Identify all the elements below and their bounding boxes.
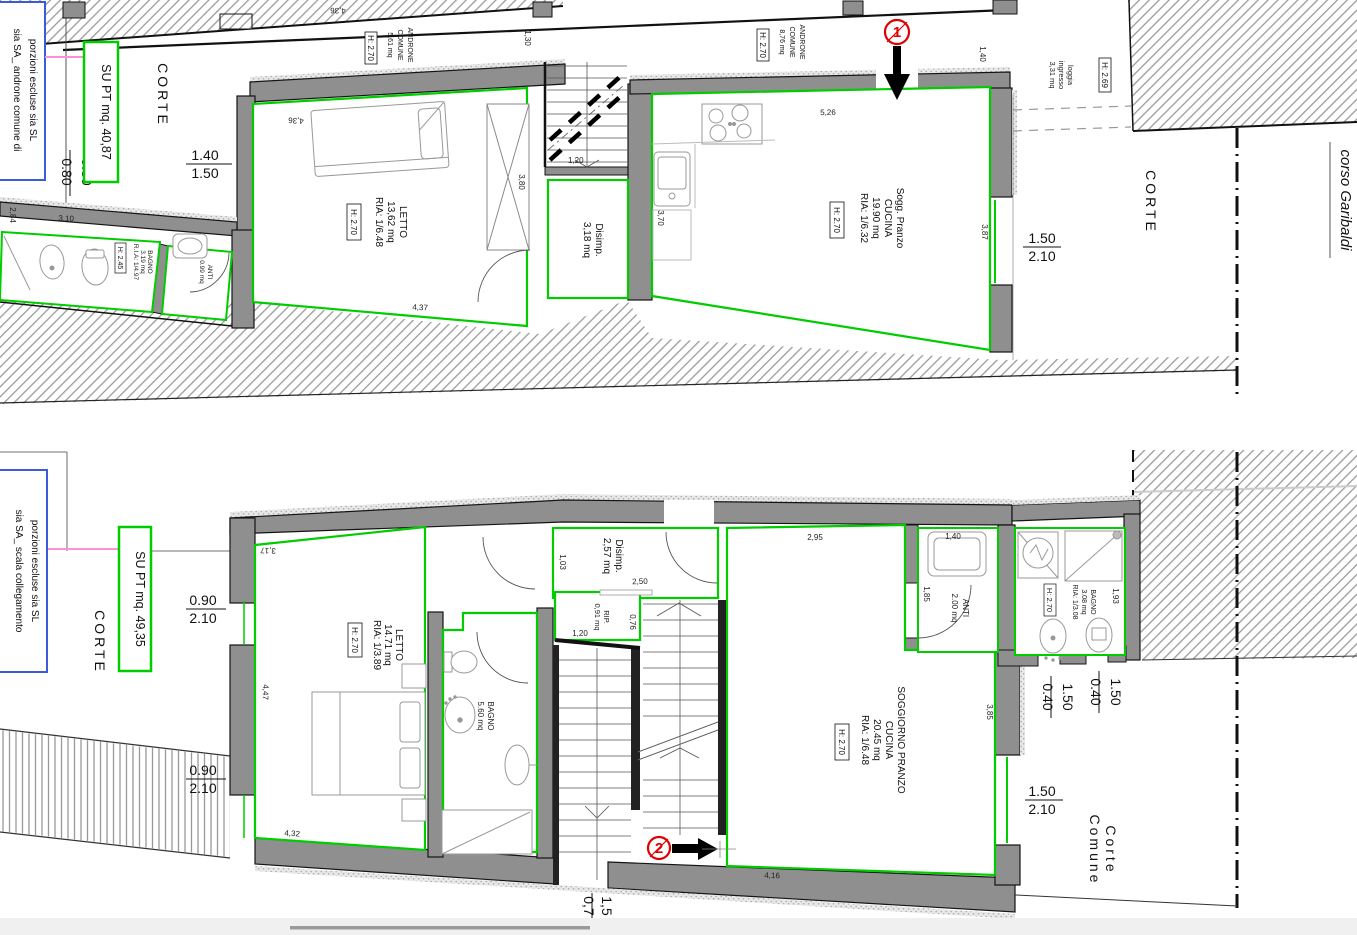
sink-icon-upper [654, 152, 690, 206]
svg-text:0.40: 0.40 [1088, 678, 1104, 705]
svg-text:Comune: Comune [1087, 815, 1103, 886]
svg-text:COMUNE: COMUNE [396, 29, 403, 60]
svg-text:H: 2.69: H: 2.69 [1100, 62, 1109, 88]
svg-text:Disimp.: Disimp. [613, 539, 624, 572]
svg-text:H: 2.70: H: 2.70 [758, 32, 767, 58]
svg-text:1.50: 1.50 [1028, 783, 1055, 799]
svg-text:1.50: 1.50 [1108, 678, 1124, 705]
svg-text:CUCINA: CUCINA [883, 721, 894, 760]
corte-upper-right: CORTE [1143, 170, 1159, 234]
floor-plan-canvas: 1 ANDRONE COMUNE 5,61 mq H: 2.70 ANDRONE… [0, 0, 1357, 935]
svg-text:RIA: 1/3.08: RIA: 1/3.08 [1071, 584, 1078, 619]
svg-text:3.19 mq: 3.19 mq [139, 250, 146, 274]
dim-window3-lower: 1.50 2.10 [1025, 783, 1063, 817]
corte-comune-boundary [1015, 895, 1237, 906]
svg-text:3.08 mq: 3.08 mq [1080, 589, 1087, 614]
svg-text:0.40: 0.40 [1040, 683, 1056, 710]
svg-text:1.50: 1.50 [191, 165, 218, 181]
label-bagno-grande: BAGNO 5.60 mq [476, 702, 495, 731]
svg-text:1,20: 1,20 [568, 156, 584, 165]
svg-text:2.10: 2.10 [1028, 801, 1055, 817]
svg-text:BAGNO: BAGNO [146, 250, 153, 273]
svg-text:2,50: 2,50 [632, 577, 648, 587]
svg-text:RIA: 1/6.32: RIA: 1/6.32 [858, 193, 869, 243]
su-pt-box-upper: SU PT mq. 40,87 [84, 42, 118, 182]
entrance-marker-2: 2 [648, 837, 736, 860]
svg-text:3,17: 3,17 [259, 546, 276, 556]
svg-text:4,36: 4,36 [287, 115, 304, 125]
dim-door2-lower: 0.40 1.50 [1088, 671, 1124, 713]
bottom-strip [0, 918, 1357, 935]
svg-text:ANDRONE: ANDRONE [798, 24, 805, 59]
svg-text:2.00 mq: 2.00 mq [950, 594, 959, 623]
svg-text:3,31 mq: 3,31 mq [1048, 61, 1057, 88]
door-arc-letto-lower [483, 537, 535, 589]
marker-2-label: 2 [655, 840, 663, 857]
svg-text:0.80: 0.80 [59, 158, 75, 185]
svg-text:ingresso: ingresso [1057, 61, 1066, 89]
svg-text:4,47: 4,47 [261, 684, 271, 700]
svg-text:ANDRONE: ANDRONE [406, 27, 413, 62]
svg-text:2,95: 2,95 [807, 533, 823, 542]
label-androne-right: ANDRONE COMUNE 8,76 mq H: 2.70 [757, 24, 805, 61]
svg-text:COMUNE: COMUNE [788, 26, 795, 57]
svg-text:5,61 mq: 5,61 mq [386, 32, 393, 57]
svg-text:2.10: 2.10 [1028, 248, 1055, 264]
svg-text:8,76 mq: 8,76 mq [778, 29, 785, 54]
svg-text:H: 2.70: H: 2.70 [832, 207, 841, 233]
svg-text:4,16: 4,16 [764, 871, 780, 881]
svg-text:0.90: 0.90 [189, 762, 216, 778]
corte-lower-left: CORTE [92, 610, 108, 674]
svg-text:RIA: 1/6.48: RIA: 1/6.48 [373, 197, 384, 247]
svg-text:0.90: 0.90 [189, 592, 216, 608]
svg-text:3,87: 3,87 [980, 224, 989, 240]
svg-text:BAGNO: BAGNO [486, 702, 495, 731]
svg-text:BAGNO: BAGNO [1089, 589, 1096, 615]
svg-text:4,37: 4,37 [412, 303, 429, 313]
svg-text:1.50: 1.50 [1060, 683, 1076, 710]
svg-text:H: 2.70: H: 2.70 [349, 209, 358, 235]
svg-text:0,76: 0,76 [628, 614, 637, 630]
shower-icon-bagno-grande [442, 810, 532, 854]
stove-icon [702, 104, 762, 144]
svg-text:1,40: 1,40 [945, 532, 961, 541]
excluded-note-upper-line2: sia SA_ androne comune di [11, 29, 22, 152]
marker-1-label: 1 [893, 24, 901, 41]
svg-text:2.10: 2.10 [189, 610, 216, 626]
svg-text:1,85: 1,85 [922, 586, 931, 602]
dim-exit-lower: 0,7 1,5 [581, 893, 615, 921]
svg-text:ANTI: ANTI [206, 265, 213, 280]
svg-text:H: 2.70: H: 2.70 [350, 627, 359, 653]
dim-window-upper-right: 1.50 2.10 [1023, 230, 1061, 264]
svg-text:13,62 mq: 13,62 mq [385, 201, 396, 243]
svg-text:RIP.: RIP. [602, 610, 611, 624]
svg-text:H: 2.45: H: 2.45 [116, 247, 123, 270]
svg-text:LETTO: LETTO [397, 206, 408, 238]
svg-text:1,93: 1,93 [1111, 588, 1120, 604]
excluded-note-lower-line2: sia SA_ scala collegamento [13, 510, 24, 633]
svg-text:19.90 mq: 19.90 mq [870, 197, 881, 239]
washbasin-icon-anti-upper [173, 234, 207, 258]
bed-icon-upper [311, 101, 449, 176]
room-disimp-lower [553, 528, 718, 598]
svg-text:H: 2.70: H: 2.70 [1045, 588, 1054, 612]
label-androne-left: ANDRONE COMUNE 5,61 mq H: 2.70 [365, 27, 413, 64]
svg-text:1,40: 1,40 [978, 46, 987, 62]
svg-text:R.I.A: 1/4.97: R.I.A: 1/4.97 [132, 244, 139, 281]
label-disimp-lower: Disimp. 2,57 mq [601, 538, 624, 574]
svg-text:20.45 mq: 20.45 mq [871, 719, 882, 761]
svg-text:LETTO: LETTO [393, 629, 404, 661]
svg-text:1.50: 1.50 [1028, 230, 1055, 246]
dim-door1-lower: 0.40 1.50 [1040, 676, 1076, 718]
svg-text:4,32: 4,32 [284, 828, 301, 838]
corte-comune-label: Corte Comune [1087, 815, 1119, 886]
horizontal-scrollbar[interactable] [290, 926, 590, 930]
dim-gate-upper: 1.40 1.50 [186, 147, 232, 181]
svg-text:1.40: 1.40 [191, 147, 218, 163]
svg-text:Disimp.: Disimp. [593, 223, 604, 256]
excluded-note-upper-line1: porzioni escluse sia SL [27, 39, 38, 142]
svg-text:0.99 mq: 0.99 mq [198, 260, 205, 284]
svg-text:SOGGIORNO PRANZO: SOGGIORNO PRANZO [895, 686, 906, 793]
loggia-dashed-lines [1013, 106, 1131, 131]
svg-text:14.71 mq: 14.71 mq [382, 624, 393, 666]
svg-text:3,18 mq: 3,18 mq [581, 222, 592, 258]
svg-text:3,80: 3,80 [517, 174, 526, 190]
svg-text:3,10: 3,10 [58, 214, 75, 224]
label-loggia: loggia ingresso 3,31 mq H: 2.69 [1048, 58, 1111, 92]
stairs-upper-break-marks [548, 75, 624, 160]
label-disimp-upper: Disimp. 3,18 mq [581, 222, 604, 258]
toilet-icon-bagno-grande [444, 651, 477, 673]
street-label: corso Garibaldi [1337, 150, 1354, 252]
svg-text:3,85: 3,85 [985, 704, 994, 720]
svg-text:RIA: 1/3.89: RIA: 1/3.89 [371, 620, 382, 670]
svg-text:loggia: loggia [1066, 65, 1075, 86]
svg-text:4,36: 4,36 [330, 6, 346, 16]
svg-text:2,57 mq: 2,57 mq [601, 538, 612, 574]
su-pt-box-lower: SU PT mq. 49,35 [119, 527, 151, 671]
svg-text:Corte: Corte [1103, 825, 1119, 874]
svg-text:0,7: 0,7 [581, 896, 597, 916]
washing-machine-icon [1018, 532, 1058, 578]
svg-text:Sogg. Pranzo: Sogg. Pranzo [894, 188, 905, 249]
svg-text:1,20: 1,20 [572, 629, 588, 638]
svg-text:RIA: 1/6.48: RIA: 1/6.48 [859, 715, 870, 765]
svg-text:5.60 mq: 5.60 mq [476, 702, 485, 731]
shelf-disimp-lower [600, 590, 652, 595]
svg-text:1,30: 1,30 [523, 30, 532, 46]
lower-hatch-right [1133, 450, 1357, 660]
dim-window1-lower: 0.90 2.10 [186, 592, 226, 626]
svg-text:2.10: 2.10 [189, 780, 216, 796]
upper-hatch-top-right [1128, 0, 1357, 131]
svg-text:CUCINA: CUCINA [882, 199, 893, 238]
toilet-icon-bagno-piccolo [1086, 618, 1112, 652]
corte-upper-left: CORTE [155, 63, 171, 127]
svg-text:5,26: 5,26 [820, 108, 836, 117]
svg-text:H: 2.70: H: 2.70 [837, 729, 846, 755]
svg-text:1,03: 1,03 [558, 554, 567, 570]
svg-text:SU PT mq. 40,87: SU PT mq. 40,87 [99, 64, 113, 160]
svg-text:3,70: 3,70 [656, 210, 665, 226]
svg-text:2,84: 2,84 [8, 207, 17, 223]
floor-plan-drawing: 1 ANDRONE COMUNE 5,61 mq H: 2.70 ANDRONE… [0, 0, 1357, 935]
svg-text:0,91 mq: 0,91 mq [593, 603, 602, 630]
excluded-note-lower-line1: porzioni escluse sia SL [29, 520, 40, 623]
svg-text:SU PT mq. 49,35: SU PT mq. 49,35 [133, 551, 147, 647]
svg-text:H: 2.70: H: 2.70 [366, 35, 375, 61]
shower-icon-bagno-piccolo [1065, 531, 1122, 581]
svg-text:1,5: 1,5 [599, 896, 615, 916]
room-letto-lower [255, 527, 425, 850]
svg-text:ANTI: ANTI [961, 599, 970, 617]
